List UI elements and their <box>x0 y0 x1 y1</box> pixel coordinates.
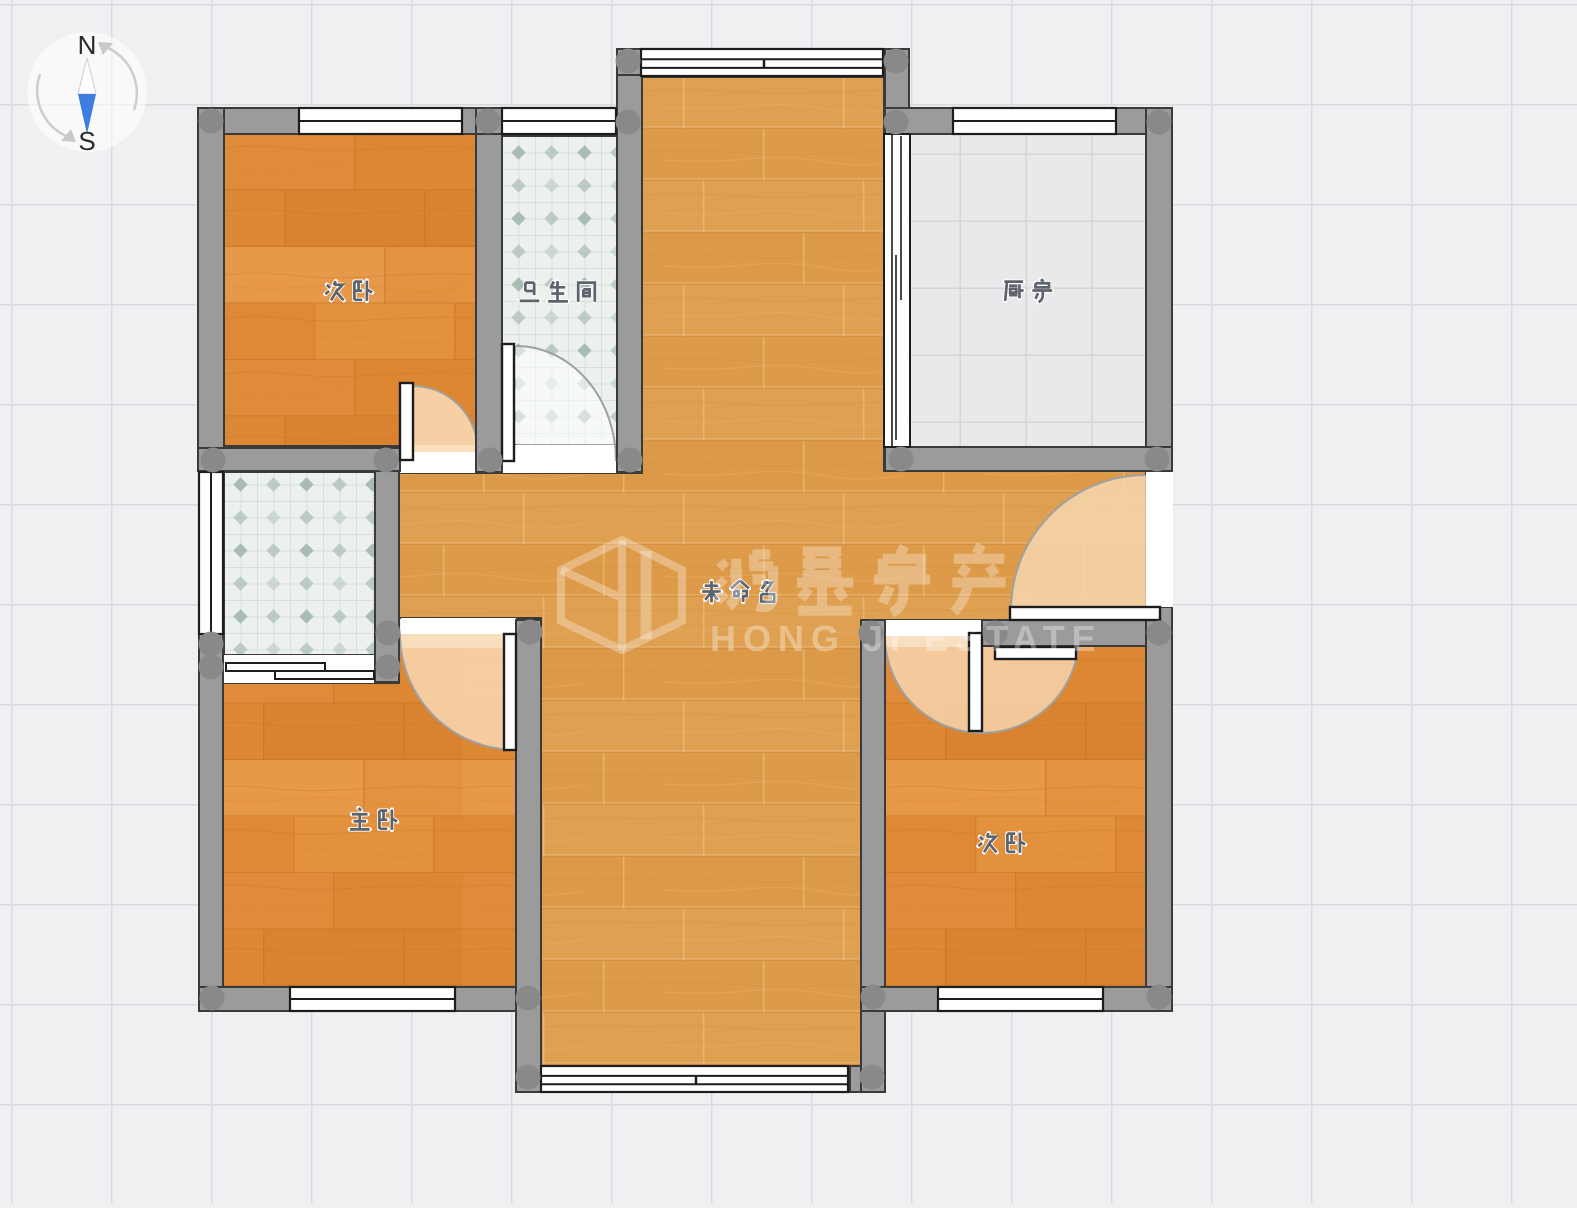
svg-text:HONG JI ESTATE: HONG JI ESTATE <box>710 618 1103 659</box>
svg-text:N: N <box>78 30 97 60</box>
svg-text:S: S <box>78 126 95 156</box>
